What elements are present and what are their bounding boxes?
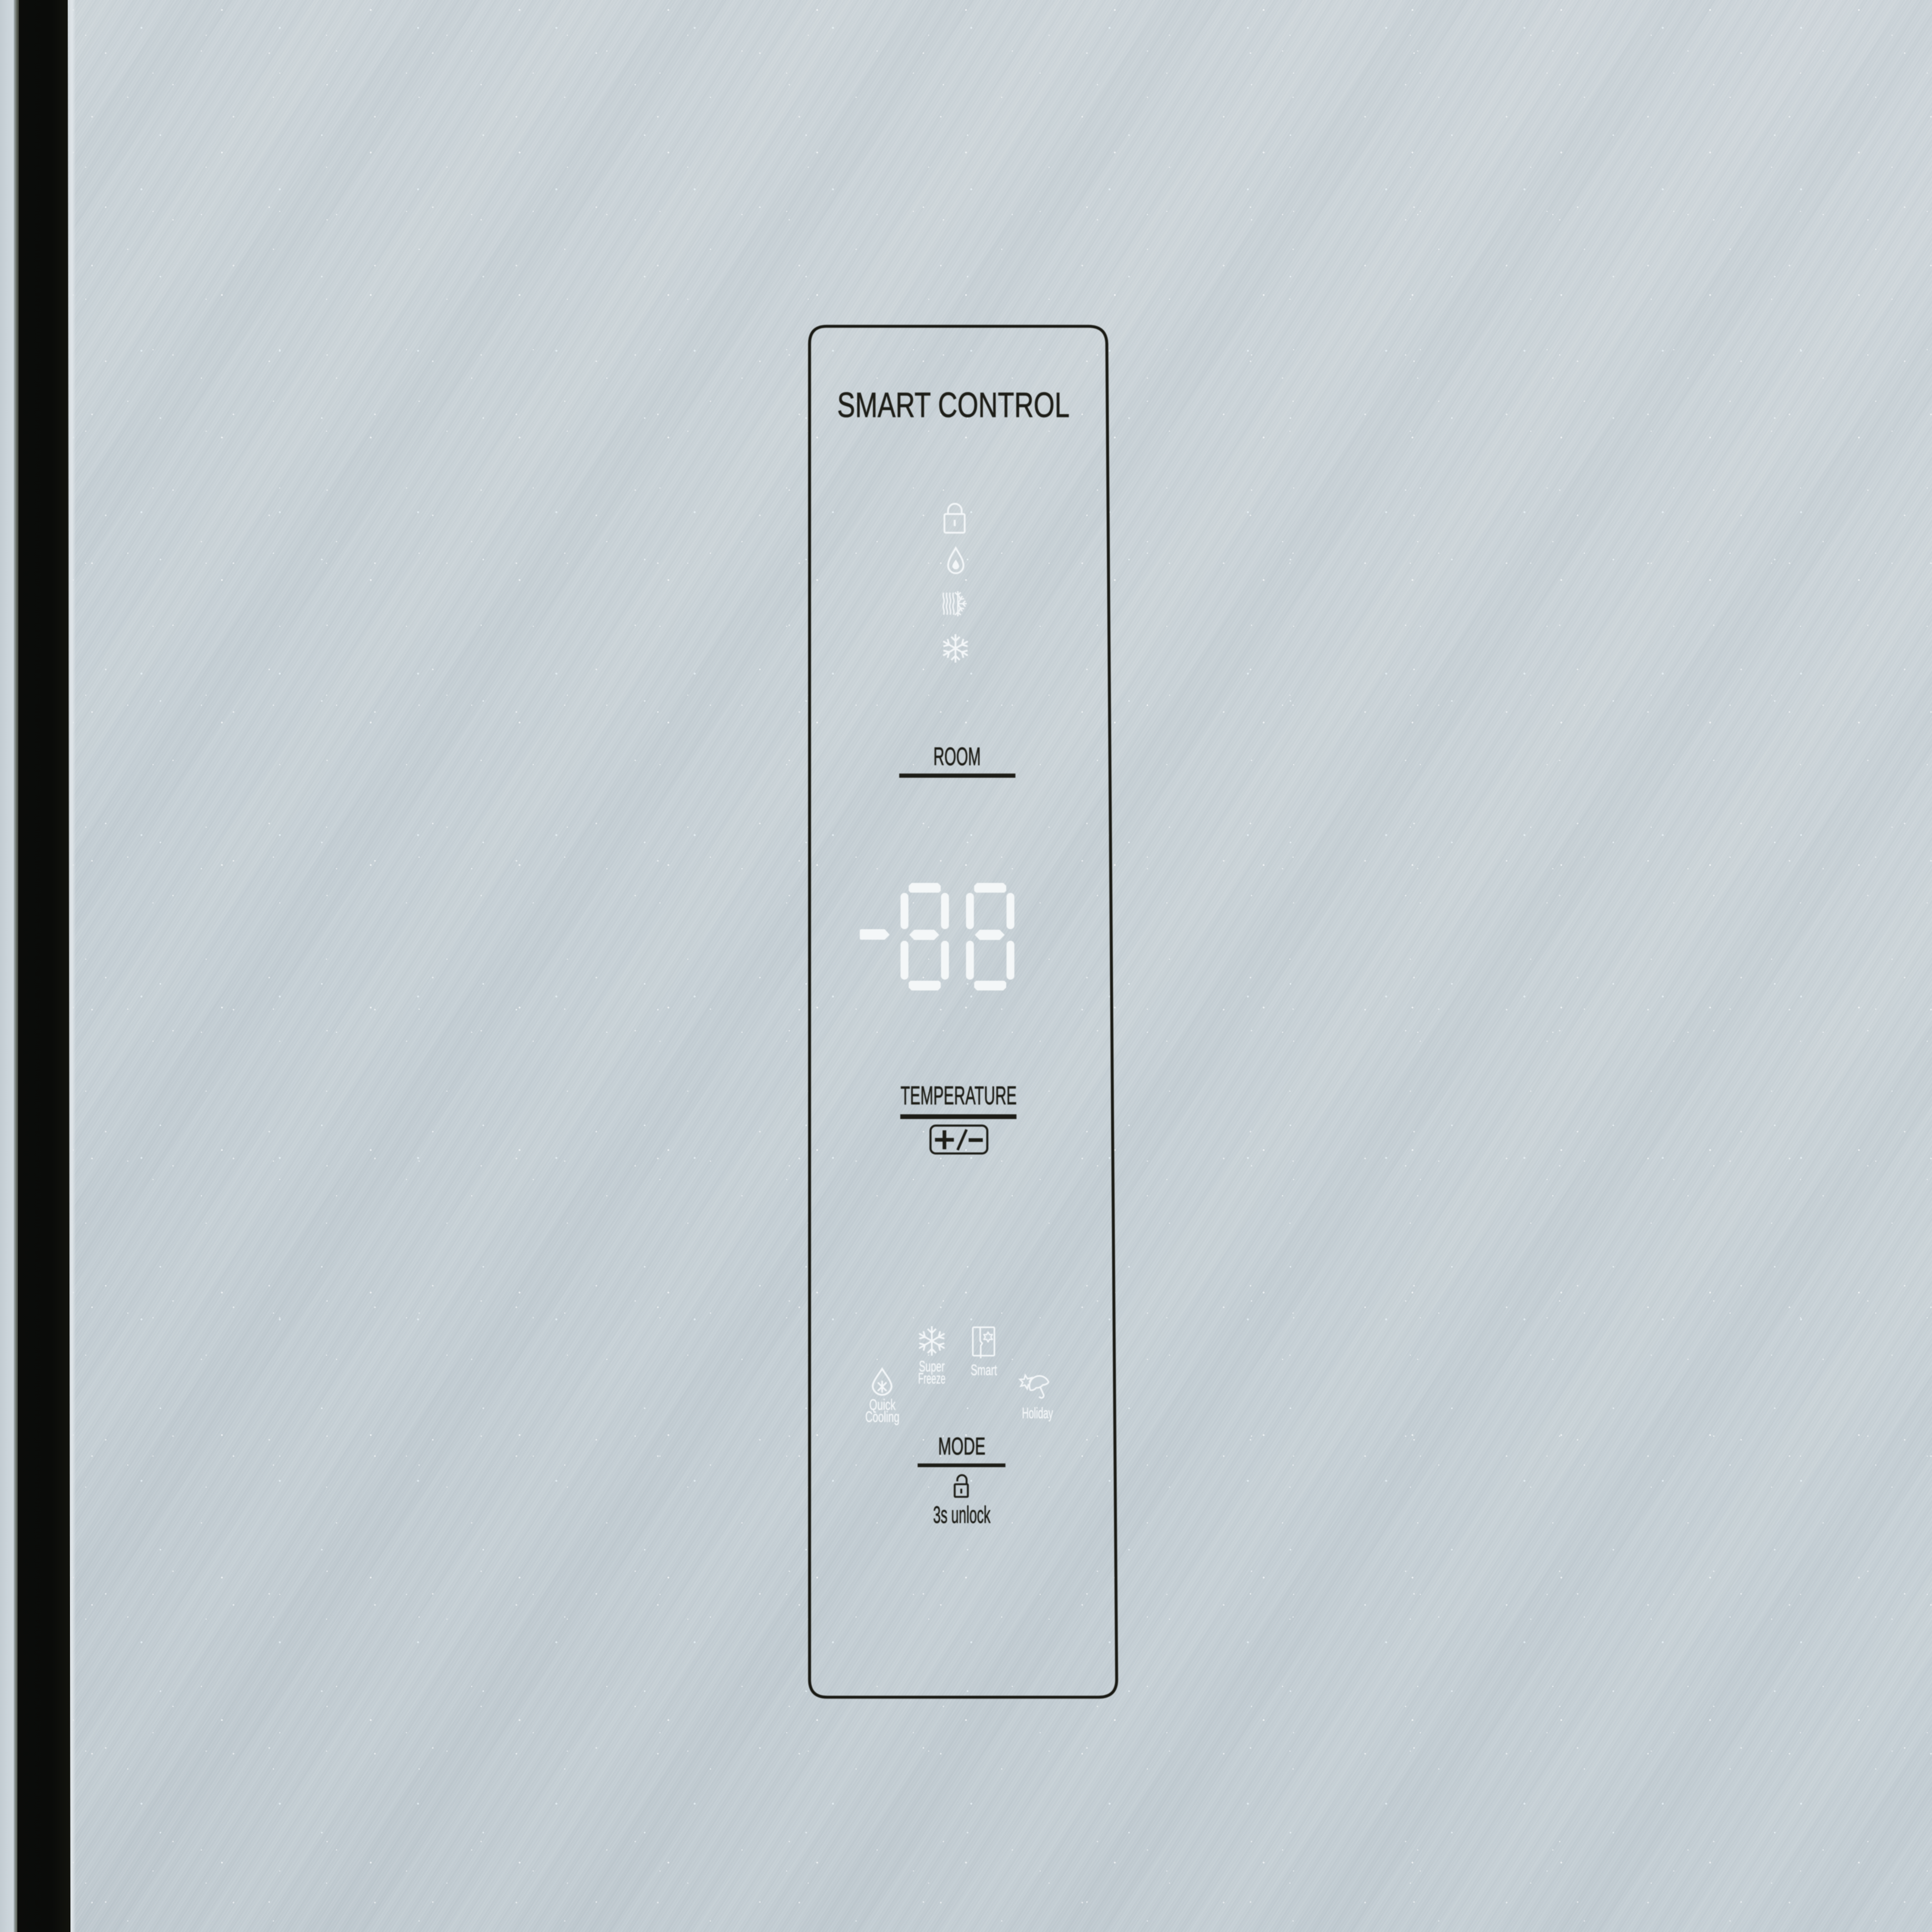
- svg-text:ROOM: ROOM: [933, 743, 981, 771]
- svg-text:SMART CONTROL: SMART CONTROL: [837, 385, 1070, 425]
- svg-text:TEMPERATURE: TEMPERATURE: [901, 1082, 1017, 1110]
- svg-text:Freeze: Freeze: [918, 1370, 945, 1387]
- svg-text:Cooling: Cooling: [866, 1409, 900, 1426]
- svg-text:Holiday: Holiday: [1022, 1405, 1053, 1422]
- svg-text:MODE: MODE: [938, 1432, 985, 1460]
- svg-text:Smart: Smart: [971, 1362, 997, 1379]
- svg-text:3s unlock: 3s unlock: [933, 1501, 991, 1528]
